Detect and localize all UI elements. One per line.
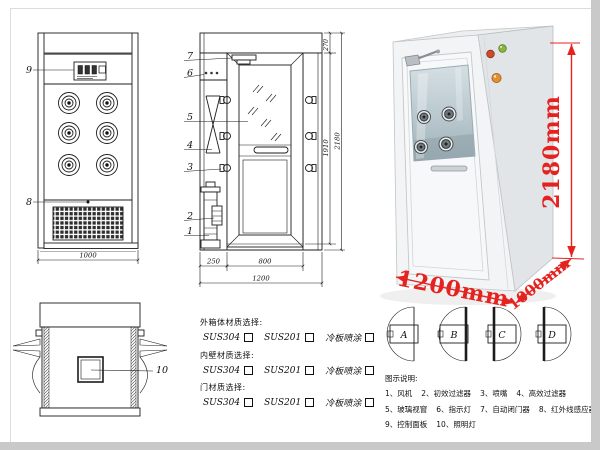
- page-frame-left: [10, 8, 11, 442]
- material-checkbox-inner-coldplate[interactable]: [365, 366, 374, 375]
- photo-nozzles: [415, 107, 457, 154]
- legend-item: 5、玻璃视窗: [385, 405, 427, 414]
- photo-glass-window: [410, 65, 475, 161]
- part-label-9: 9: [26, 65, 32, 76]
- material-checkbox-inner-sus201[interactable]: [305, 366, 314, 375]
- material-checkbox-outer-sus201[interactable]: [305, 333, 314, 342]
- door-config-label-a: A: [400, 330, 408, 341]
- dim-1200-label: 1200: [252, 275, 270, 283]
- material-checkbox-outer-sus304[interactable]: [244, 333, 253, 342]
- legend-item: 3、喷嘴: [480, 389, 507, 398]
- door-closer: [232, 55, 256, 64]
- part-label-2: 2: [186, 211, 193, 222]
- part-label-10: 10: [156, 365, 168, 376]
- door-config-c: C: [486, 307, 521, 361]
- door-handle: [254, 147, 288, 153]
- material-option-label: SUS304: [203, 333, 240, 343]
- red-indicator-light: [487, 50, 495, 58]
- photo-door-handle: [431, 166, 467, 171]
- fan-structure: [206, 96, 220, 153]
- top-view-drawing: 10: [13, 303, 168, 416]
- dim-1910-label: 1910: [322, 139, 330, 157]
- material-option-label: 冷板喷涂: [325, 331, 361, 344]
- green-indicator-light: [499, 45, 507, 53]
- legend-row: 1、风机2、初效过滤器3、喷嘴4、高效过滤器: [385, 388, 590, 399]
- photo-height-label: 2180mm: [539, 95, 565, 209]
- nozzles-front: [59, 93, 118, 176]
- cabinet-top: [393, 26, 553, 42]
- part-label-1: 1: [187, 226, 193, 237]
- material-checkbox-inner-sus304[interactable]: [244, 366, 253, 375]
- side-view-drawing: 7 6 5 4 3 2 1 250 800: [184, 33, 345, 287]
- door-swing-right: [140, 339, 167, 393]
- cabinet-side: [478, 26, 553, 291]
- door-config-label-c: C: [498, 330, 506, 341]
- spec-sheet: 1000 9 8: [0, 0, 600, 450]
- legend-item: 1、风机: [385, 389, 412, 398]
- legend-item: 2、初效过滤器: [421, 389, 471, 398]
- material-checkbox-door-sus201[interactable]: [305, 398, 314, 407]
- door-config-d: D: [536, 307, 571, 361]
- nozzles-side-left: [220, 97, 231, 172]
- legend-item: 9、控制面板: [385, 420, 427, 429]
- door-config-label-b: B: [450, 330, 458, 341]
- legend-row: 5、玻璃视窗6、指示灯7、自动闭门器8、红外线感应器: [385, 404, 590, 415]
- legend-title: 图示说明:: [385, 373, 590, 384]
- door-side: [227, 53, 303, 247]
- material-option-label: SUS201: [264, 366, 301, 376]
- material-checkbox-outer-coldplate[interactable]: [365, 333, 374, 342]
- front-view-drawing: 1000 9 8: [26, 33, 138, 264]
- air-grille: [53, 207, 123, 240]
- page-frame-bottom: [0, 442, 600, 450]
- nozzles-side-right: [306, 97, 317, 172]
- page-frame-top: [10, 8, 591, 9]
- material-section-title-outer: 外箱体材质选择:: [200, 317, 263, 328]
- dim-250-label: 250: [206, 258, 221, 266]
- dim-2180-label: 2180: [334, 132, 342, 151]
- material-options-row: SUS304 SUS201 冷板喷涂: [203, 396, 385, 409]
- part-label-3: 3: [187, 162, 193, 173]
- door-config-b: B: [438, 307, 468, 361]
- dim-270-label: 270: [323, 39, 330, 52]
- photo-width-label: 1200mm: [395, 266, 512, 313]
- filter-cylinder: [201, 182, 222, 248]
- side-height-dimensions: 270 1910 2180: [305, 33, 345, 250]
- product-photo: 2180mm 1200mm 1000mm: [380, 26, 584, 314]
- front-width-dim-label: 1000: [79, 252, 97, 260]
- material-option-label: 冷板喷涂: [325, 396, 361, 409]
- dim-800-label: 800: [259, 258, 273, 266]
- legend-item: 8、红外线感应器: [539, 405, 596, 414]
- part-label-7: 7: [187, 51, 194, 62]
- door-config-diagrams: A B C D: [387, 307, 571, 361]
- part-label-8: 8: [26, 197, 32, 208]
- material-section-title-inner: 内壁材质选择:: [200, 350, 254, 361]
- material-checkbox-door-sus304[interactable]: [244, 398, 253, 407]
- photo-door-closer: [405, 50, 440, 67]
- legend: 图示说明: 1、风机2、初效过滤器3、喷嘴4、高效过滤器 5、玻璃视窗6、指示灯…: [385, 373, 590, 435]
- legend-row: 9、控制面板10、照明灯: [385, 419, 590, 430]
- material-option-label: SUS201: [264, 398, 301, 408]
- part-label-4: 4: [186, 140, 193, 151]
- legend-item: 7、自动闭门器: [480, 405, 530, 414]
- door-config-label-d: D: [547, 330, 556, 341]
- light-fixture: [44, 53, 132, 55]
- part-label-5: 5: [187, 112, 193, 123]
- photo-depth-label: 1000mm: [504, 254, 573, 314]
- page-frame-right: [591, 0, 600, 450]
- door-config-a: A: [387, 307, 418, 361]
- material-checkbox-door-coldplate[interactable]: [365, 398, 374, 407]
- photo-dimensions: 2180mm 1200mm 1000mm: [395, 43, 584, 314]
- legend-item: 4、高效过滤器: [516, 389, 566, 398]
- side-bottom-dimensions: 250 800 1200: [200, 252, 322, 287]
- part-label-6: 6: [187, 68, 193, 79]
- ceiling-lamp: [78, 357, 103, 382]
- material-option-label: SUS201: [264, 333, 301, 343]
- photo-door: [402, 52, 489, 280]
- cabinet-front: [393, 35, 515, 291]
- material-options-row: SUS304 SUS201 冷板喷涂: [203, 364, 385, 377]
- material-options-row: SUS304 SUS201 冷板喷涂: [203, 331, 385, 344]
- legend-item: 6、指示灯: [436, 405, 471, 414]
- door-swing-left: [13, 339, 40, 393]
- front-width-dimension: 1000: [38, 250, 138, 264]
- material-option-label: 冷板喷涂: [325, 364, 361, 377]
- material-option-label: SUS304: [203, 398, 240, 408]
- amber-button: [492, 73, 501, 82]
- control-panel: [74, 62, 106, 80]
- material-section-title-door: 门材质选择:: [200, 382, 246, 393]
- material-option-label: SUS304: [203, 366, 240, 376]
- legend-item: 10、照明灯: [436, 420, 476, 429]
